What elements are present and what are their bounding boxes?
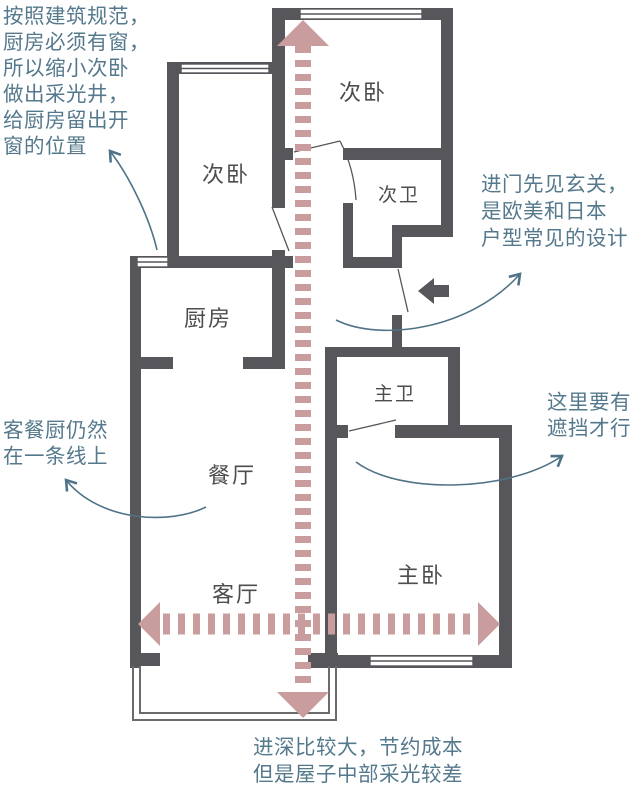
room-label-bedroom2-right: 次卧: [339, 75, 387, 107]
wall: [138, 653, 160, 666]
walls: [130, 8, 512, 668]
note-line: 所以缩小次卧: [3, 56, 150, 82]
wall: [167, 62, 179, 256]
wall: [277, 148, 293, 160]
window: [181, 64, 269, 73]
wall: [327, 347, 460, 357]
note-line: 但是屋子中部采光较差: [253, 761, 463, 788]
wall: [499, 425, 512, 668]
room-label-bath1: 主卫: [374, 379, 416, 406]
note-building-code: 按照建筑规范， 厨房必须有窗， 所以缩小次卧 做出采光井， 给厨房留出开 窗的位…: [3, 4, 150, 160]
wall: [243, 357, 285, 369]
window: [137, 257, 168, 267]
floor-plan-page: 次卧 次卧 次卫 厨房 主卫 餐厅 客厅 主卧 按照建筑规范， 厨房必须有窗， …: [0, 0, 640, 794]
window: [300, 9, 422, 19]
note-line: 给厨房留出开: [3, 108, 150, 134]
note-line: 客餐厨仍然: [3, 418, 108, 444]
wall: [448, 347, 460, 432]
room-label-living: 客厅: [212, 577, 260, 609]
note-line: 这里要有: [547, 390, 631, 416]
wall: [343, 257, 402, 268]
note-line: 做出采光井，: [3, 82, 150, 108]
note-line: 按照建筑规范，: [3, 4, 150, 30]
arrowhead-right-icon: [478, 602, 500, 646]
note-line: 窗的位置: [3, 134, 150, 160]
note-depth: 进深比较大，节约成本 但是屋子中部采光较差: [253, 734, 463, 788]
arrowhead-down-icon: [277, 692, 329, 718]
wall: [130, 256, 141, 668]
room-label-bedroom2-left: 次卧: [202, 157, 250, 189]
entry-arrow-icon: [418, 278, 449, 304]
door-leaf: [398, 269, 408, 312]
wall: [272, 8, 285, 208]
window: [370, 656, 473, 666]
note-line: 进深比较大，节约成本: [253, 734, 463, 761]
note-entry-foyer: 进门先见玄关， 是欧美和日本 户型常见的设计: [481, 171, 628, 252]
wall: [395, 425, 510, 438]
wall: [343, 148, 453, 160]
arrowhead-left-icon: [138, 602, 160, 646]
note-shielding: 这里要有 遮挡才行: [547, 390, 631, 442]
note-same-line: 客餐厨仍然 在一条线上: [3, 418, 108, 470]
note-line: 户型常见的设计: [481, 225, 628, 252]
room-label-bath2: 次卫: [378, 180, 420, 207]
room-label-bedroom1: 主卧: [397, 558, 445, 590]
note-line: 是欧美和日本: [481, 198, 628, 225]
arrow-to-lightwell-note: [110, 151, 157, 250]
door-leaf: [349, 420, 396, 431]
wall: [272, 250, 285, 368]
width-arrow: [138, 602, 500, 646]
note-line: 厨房必须有窗，: [3, 30, 150, 56]
note-line: 在一条线上: [3, 444, 108, 470]
door-leaf: [272, 207, 289, 251]
wall: [308, 653, 338, 668]
note-line: 进门先见玄关，: [481, 171, 628, 198]
arrow-to-foyer-note: [336, 274, 520, 330]
note-line: 遮挡才行: [547, 416, 631, 442]
room-label-dining: 餐厅: [208, 458, 256, 490]
wall: [441, 8, 453, 237]
room-label-kitchen: 厨房: [184, 301, 232, 333]
arrow-to-shielding-note: [356, 456, 562, 485]
